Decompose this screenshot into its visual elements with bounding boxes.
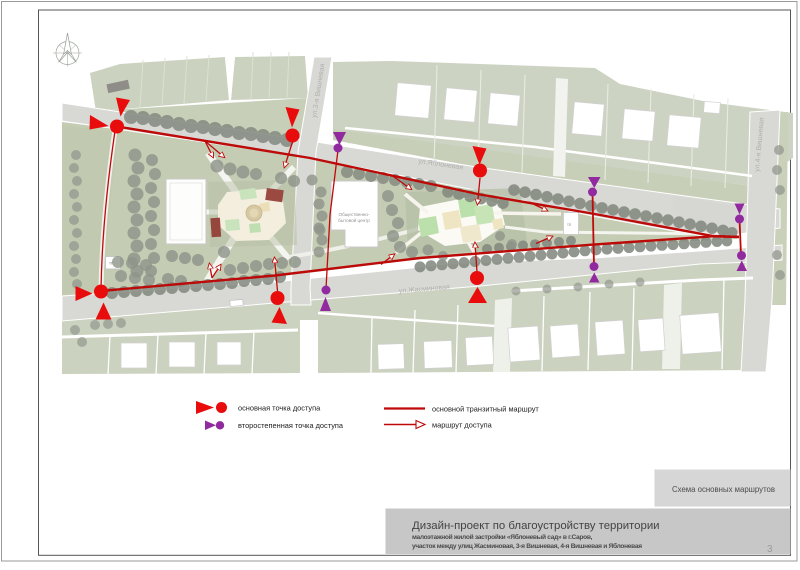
- svg-text:Общественно-: Общественно-: [339, 212, 370, 217]
- svg-text:бытовой центр: бытовой центр: [338, 217, 370, 223]
- svg-text:Дизайн-проект по благоустройст: Дизайн-проект по благоустройству террито…: [412, 520, 660, 532]
- svg-text:основной транзитный маршрут: основной транзитный маршрут: [432, 405, 539, 414]
- svg-text:малоэтажной жилой застройки «Я: малоэтажной жилой застройки «Яблоневый с…: [412, 533, 593, 541]
- svg-text:участок между улиц Жасминовая,: участок между улиц Жасминовая, 3-я Вишне…: [412, 542, 642, 550]
- svg-text:Схема основных маршрутов: Схема основных маршрутов: [672, 485, 775, 494]
- svg-text:второстепенная точка доступа: второстепенная точка доступа: [238, 421, 344, 430]
- svg-text:основная точка доступа: основная точка доступа: [238, 404, 321, 413]
- svg-text:3: 3: [767, 544, 773, 555]
- svg-text:маршрут доступа: маршрут доступа: [432, 421, 493, 430]
- svg-text:тп: тп: [567, 222, 571, 227]
